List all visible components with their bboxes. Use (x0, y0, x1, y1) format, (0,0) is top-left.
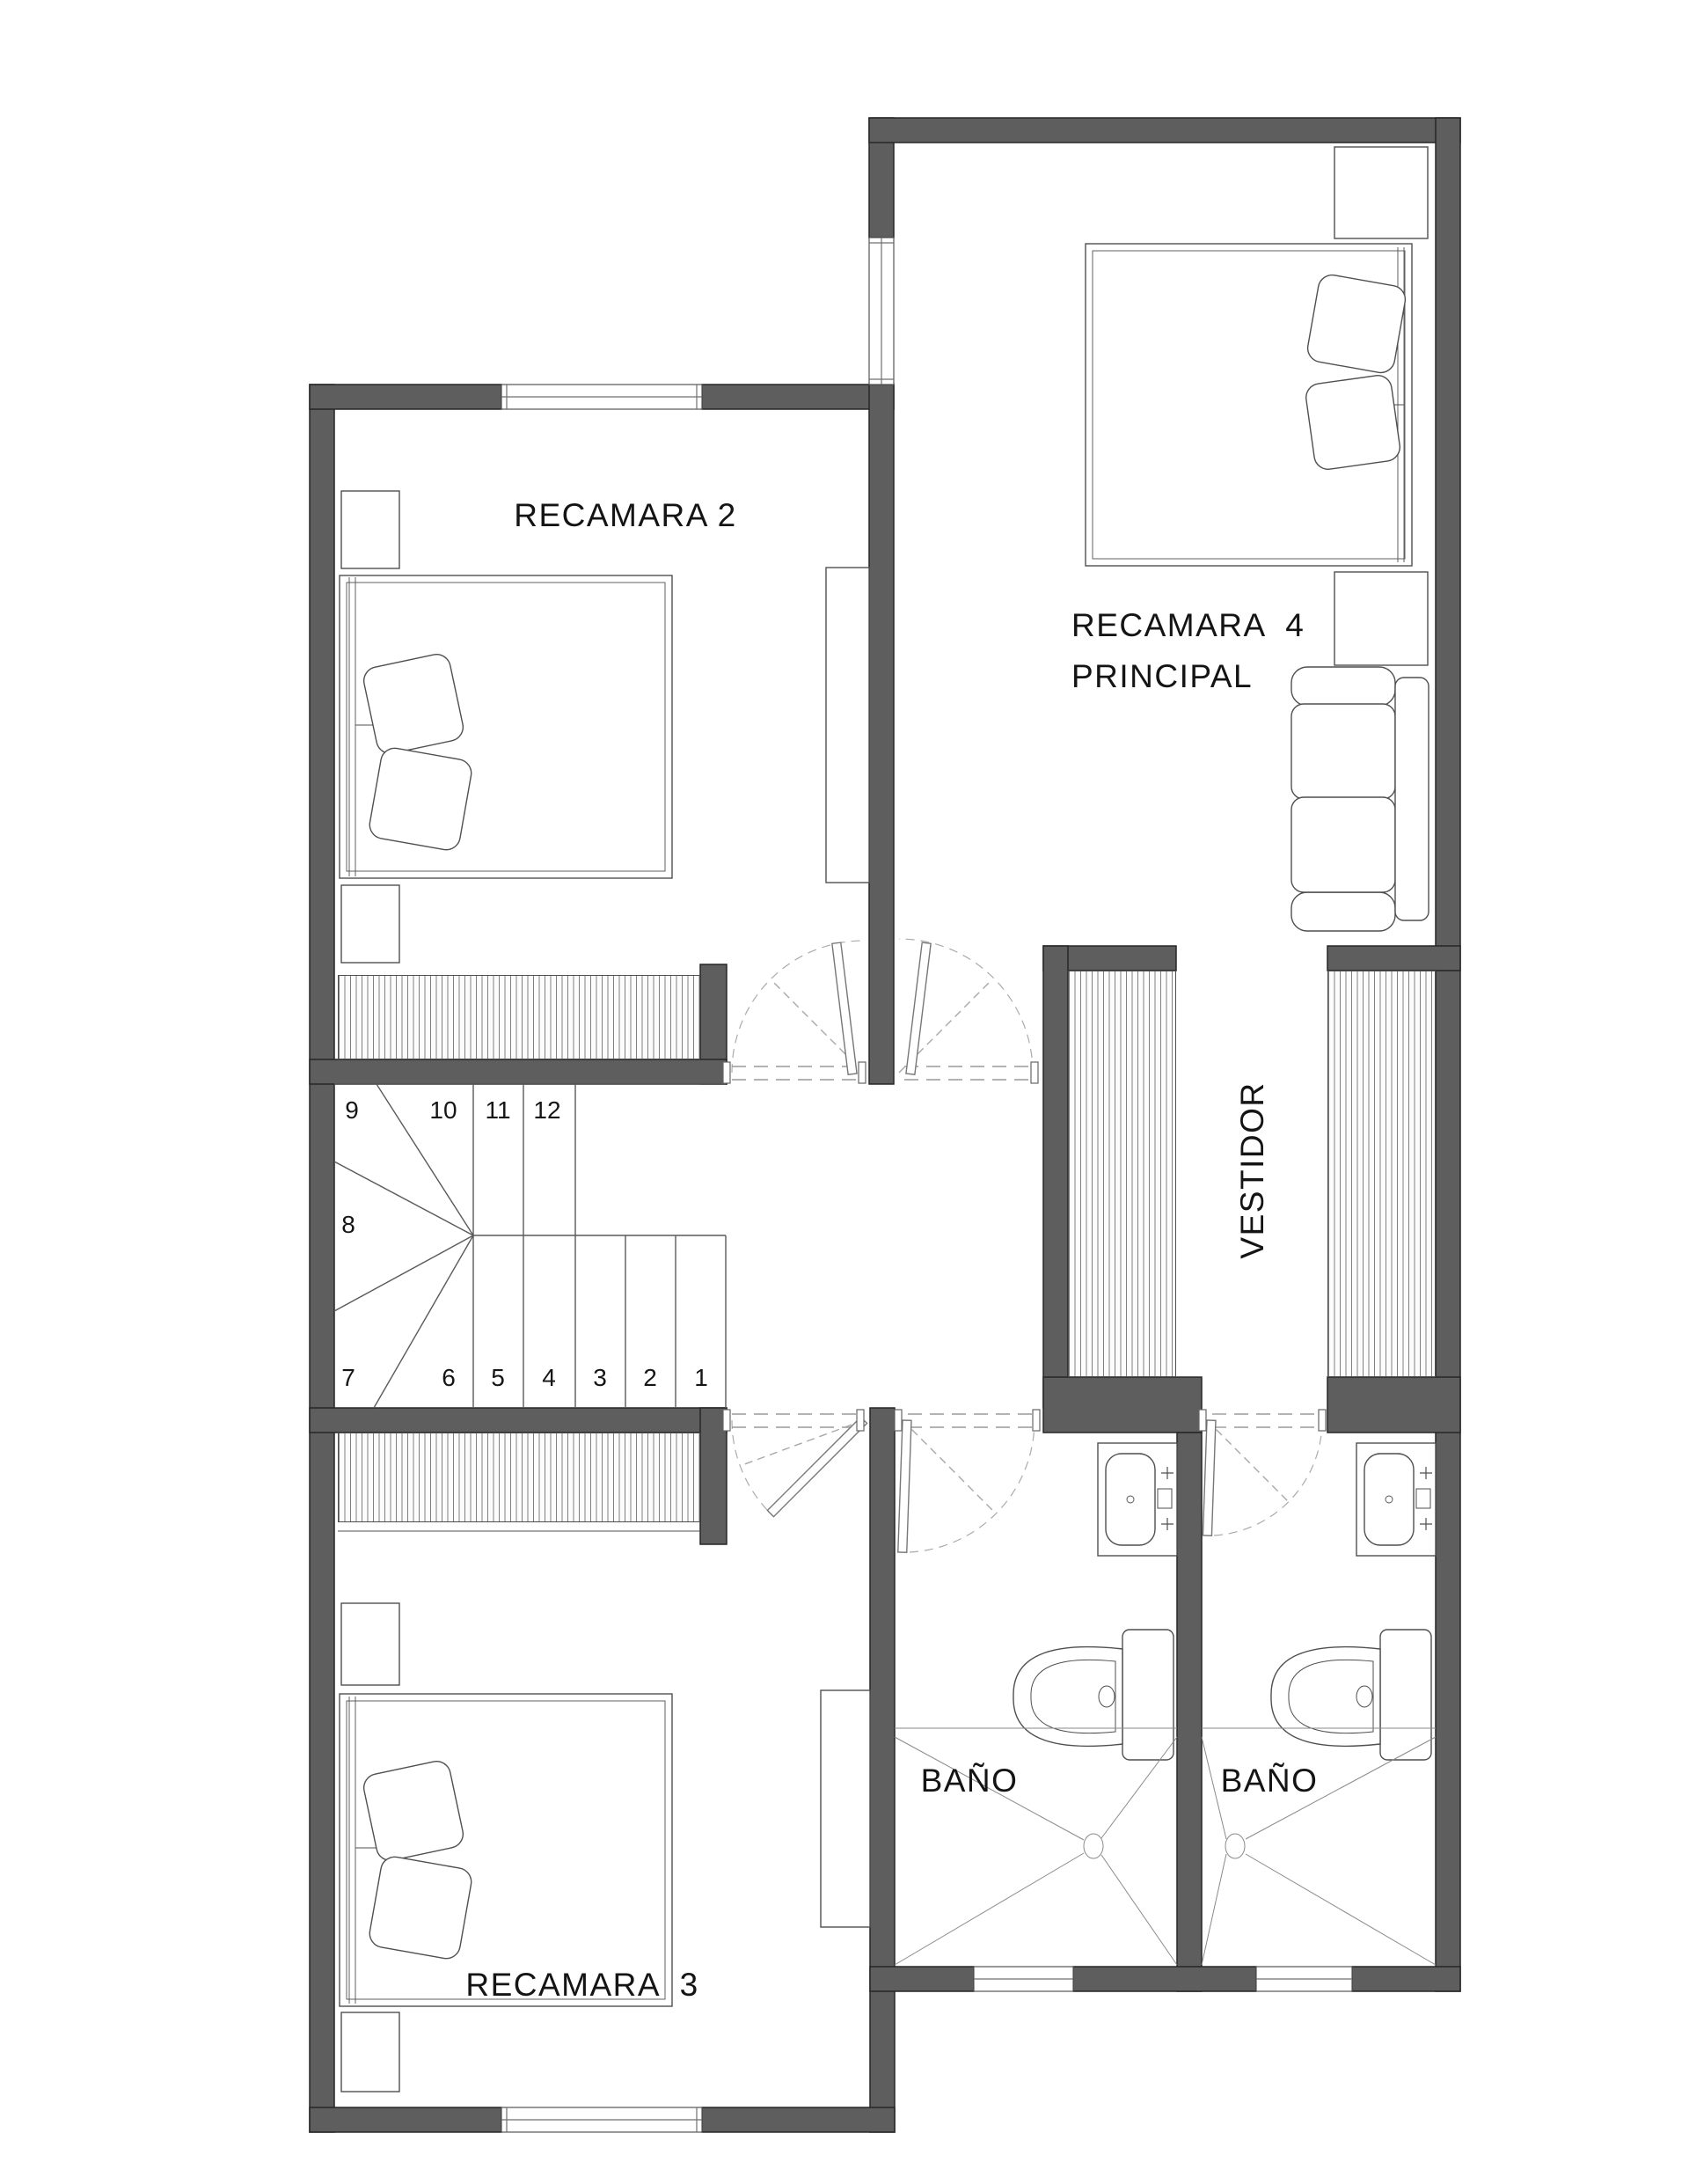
closet-vestidor-right (1327, 971, 1436, 1377)
wall-bano-center (1177, 1433, 1202, 1991)
nightstand (341, 491, 399, 568)
label-vestidor: VESTIDOR (1234, 1081, 1271, 1258)
winder-line-7-8 (334, 1235, 473, 1311)
stair-step-2: 2 (643, 1364, 657, 1392)
stair-step-4: 4 (542, 1364, 556, 1392)
label-bano-left: BAÑO (921, 1763, 1019, 1799)
stair-step-1: 1 (694, 1364, 708, 1392)
nightstand (341, 2012, 399, 2092)
pillow-icon (362, 652, 466, 757)
bathroom-fixtures (895, 1443, 1436, 1965)
closet-vestidor-left (1068, 971, 1176, 1377)
wall-r3-top (310, 1408, 727, 1433)
staircase (334, 1084, 726, 1408)
wall-bano-west (870, 1408, 895, 2132)
stair-step-3: 3 (593, 1364, 607, 1392)
pillow-icon (368, 1855, 473, 1960)
wall-right-outer (1436, 118, 1460, 1991)
sink-right (1356, 1443, 1436, 1556)
stair-step-6: 6 (442, 1364, 456, 1392)
window-bano-right (1256, 1967, 1352, 1991)
sink-left (1098, 1443, 1177, 1556)
nightstand (1334, 147, 1428, 238)
stair-step-12: 12 (533, 1096, 560, 1125)
desk-recamara3 (821, 1690, 870, 1927)
stair-step-7: 7 (341, 1364, 355, 1392)
furniture-recamara3 (338, 1531, 870, 2092)
winder-line-6-7 (374, 1235, 473, 1408)
window-bano-left (974, 1967, 1073, 1991)
pillow-icon (368, 746, 473, 852)
wall-center-main (869, 385, 894, 1084)
wall-vestidor-left (1043, 946, 1068, 1408)
wall-vestidor-bottom-left (1043, 1377, 1202, 1433)
wall-vestidor-bottom-right (1327, 1377, 1460, 1433)
closet-recamara3 (338, 1433, 700, 1522)
pillow-icon (1305, 374, 1402, 472)
wall-r4-top (869, 118, 1460, 143)
nightstand (1334, 572, 1428, 665)
wall-bano-bottom-b (1073, 1967, 1256, 1991)
toilet-right (1271, 1630, 1431, 1760)
winder-line-9-10 (377, 1084, 473, 1235)
door-recamara3 (723, 1410, 867, 1517)
door-bano-left (895, 1410, 1040, 1552)
label-recamara3: RECAMARA 3 (465, 1967, 698, 2004)
stair-step-8: 8 (341, 1211, 355, 1239)
label-recamara4-line2: PRINCIPAL (1071, 658, 1253, 695)
wall-r2-top-b (702, 385, 894, 409)
desk-recamara2 (826, 568, 869, 883)
sofa (1291, 667, 1429, 931)
label-bano-right: BAÑO (1221, 1763, 1319, 1799)
nightstand (341, 1603, 399, 1685)
wall-hall-top (310, 1059, 727, 1084)
pillow-icon (1305, 273, 1407, 375)
furniture-recamara2 (340, 491, 869, 963)
window-r2-top (501, 385, 702, 409)
floor-plan-drawing (0, 0, 1689, 2184)
wall-bano-bottom-c (1352, 1967, 1460, 1991)
window-r3-bottom (501, 2107, 702, 2132)
stair-step-9: 9 (345, 1096, 359, 1125)
door-bano-right (1199, 1410, 1326, 1535)
nightstand (341, 885, 399, 963)
closet-recamara2 (338, 975, 700, 1059)
furniture-recamara4 (1086, 147, 1429, 931)
door-recamara2 (723, 941, 866, 1083)
floor-plan: RECAMARA 2 RECAMARA 4 PRINCIPAL RECAMARA… (0, 0, 1689, 2184)
pillow-icon (362, 1759, 466, 1864)
wall-vestidor-cap-right (1327, 946, 1460, 971)
stair-step-5: 5 (491, 1364, 505, 1392)
label-recamara2: RECAMARA 2 (514, 497, 737, 534)
window-r4-left (869, 238, 894, 385)
wall-r3-bottom-a (310, 2107, 501, 2132)
stair-step-10: 10 (429, 1096, 457, 1125)
wall-left-outer (310, 385, 334, 2132)
toilet-left (1013, 1630, 1174, 1760)
wall-r3-bottom-b (702, 2107, 895, 2132)
label-recamara4-line1: RECAMARA 4 (1071, 607, 1305, 644)
stair-step-11: 11 (485, 1096, 510, 1125)
wall-bano-bottom-a (870, 1967, 974, 1991)
door-recamara4 (899, 939, 1038, 1083)
wall-r2-top-a (310, 385, 501, 409)
